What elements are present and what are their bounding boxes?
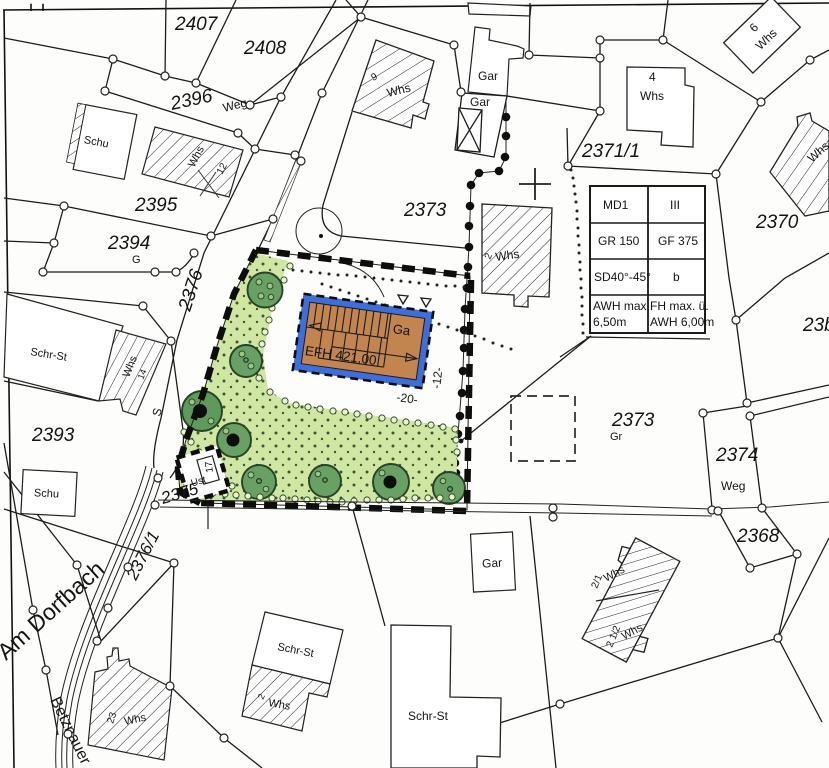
svg-text:2395: 2395 bbox=[134, 195, 178, 216]
svg-text:2393: 2393 bbox=[31, 425, 75, 446]
svg-text:Schu: Schu bbox=[34, 487, 60, 500]
svg-text:2368: 2368 bbox=[736, 526, 780, 547]
svg-text:AWH max.: AWH max. bbox=[593, 299, 650, 313]
svg-text:Schr-St: Schr-St bbox=[408, 709, 449, 723]
svg-text:GF 375: GF 375 bbox=[658, 234, 698, 248]
svg-text:Gar: Gar bbox=[478, 69, 498, 83]
svg-text:4: 4 bbox=[649, 70, 656, 84]
svg-text:SD40°-45°: SD40°-45° bbox=[594, 270, 651, 284]
svg-text:2408: 2408 bbox=[243, 38, 287, 59]
svg-text:2371/1: 2371/1 bbox=[581, 141, 640, 162]
svg-text:2407: 2407 bbox=[174, 14, 219, 35]
svg-text:2373: 2373 bbox=[611, 410, 655, 431]
svg-text:AWH 6,00m: AWH 6,00m bbox=[650, 315, 714, 329]
svg-text:Weg: Weg bbox=[721, 479, 745, 493]
svg-text:Whs: Whs bbox=[640, 89, 664, 103]
svg-text:17: 17 bbox=[204, 460, 216, 473]
svg-text:-12-: -12- bbox=[429, 366, 445, 389]
svg-text:-20-: -20- bbox=[396, 390, 419, 407]
svg-text:Gr: Gr bbox=[610, 431, 623, 443]
svg-text:Gar: Gar bbox=[482, 556, 503, 571]
svg-text:b: b bbox=[673, 270, 680, 284]
svg-text:MD1: MD1 bbox=[603, 198, 629, 212]
svg-text:GR 150: GR 150 bbox=[598, 234, 640, 248]
svg-text:FH max. ü.: FH max. ü. bbox=[650, 299, 709, 313]
svg-text:G: G bbox=[132, 254, 141, 266]
svg-text:2394: 2394 bbox=[107, 233, 150, 254]
svg-text:23b: 23b bbox=[802, 315, 829, 336]
svg-text:2374: 2374 bbox=[715, 445, 758, 466]
svg-text:6,50m: 6,50m bbox=[593, 315, 626, 329]
svg-text:Ga: Ga bbox=[392, 321, 412, 338]
svg-text:2373: 2373 bbox=[403, 200, 447, 221]
svg-text:Gar: Gar bbox=[470, 95, 490, 109]
svg-text:III: III bbox=[670, 198, 680, 212]
svg-text:2370: 2370 bbox=[755, 212, 799, 233]
